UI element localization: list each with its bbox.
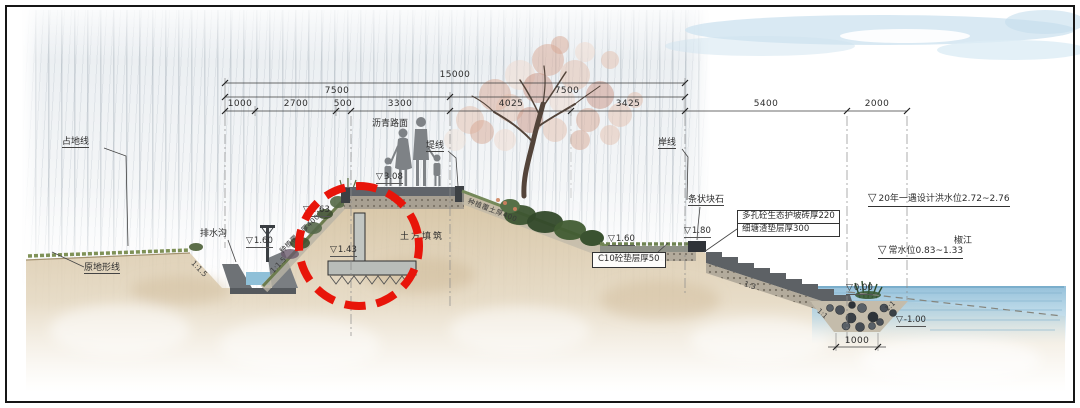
dike-line-label: 堤线 [426,141,444,152]
dim-upper-right: 7500 [555,86,580,96]
original-terrain-line-label: 原地形线 [84,263,120,274]
dim-seg-6: 3425 [616,99,641,109]
dim-seg-2: 2700 [284,99,309,109]
elevation-wall-top: ▽2.63 [303,205,330,217]
elevation-terrace: ▽1.60 [608,234,635,246]
land-take-line-label: 占地线 [62,137,89,148]
dim-seg-1: 1000 [228,99,253,109]
slope-protection-note-box: 多孔砼生态护坡砖厚220 细塘渣垫层厚300 [737,210,840,237]
elevation-icon: ▽ [376,172,383,182]
dim-trench-width: 1000 [845,336,870,346]
dim-seg-8: 2000 [865,99,890,109]
strip-stone-label: 条状块石 [688,195,724,206]
drainage-ditch-label: 排水沟 [200,229,227,239]
asphalt-road [341,186,464,209]
dim-seg-7: 5400 [754,99,779,109]
elevation-trench-bottom: ▽-1.00 [896,315,926,327]
sky [665,10,1080,60]
dim-seg-3: 500 [334,99,352,109]
asphalt-pavement-label: 沥青路面 [372,119,408,129]
elevation-stair-toe: ▽0.00 [846,283,873,295]
flood-level-annotation: ▽20年一遇设计洪水位2.72~2.76 [868,192,1010,207]
shore-line-label: 岸线 [658,138,676,149]
elevation-ditch: ▽1.60 [246,236,273,248]
c10-cushion-note-box: C10砼垫层厚50 [592,252,666,268]
elevation-icon: ▽ [303,205,310,215]
elevation-wall-footing: ▽1.43 [330,245,357,257]
levee-cross-section-drawing: 15000 7500 7500 1000 2700 500 3300 4025 … [0,0,1080,408]
dim-upper-left: 7500 [325,86,350,96]
dim-total: 15000 [440,70,471,80]
slag-cushion-note: 细塘渣垫层厚300 [738,224,839,236]
elevation-icon: ▽ [608,234,615,244]
elevation-road: ▽3.08 [376,172,403,184]
water-level-icon: ▽ [878,243,886,256]
earth-fill-label: 土方填筑 [400,232,444,242]
water-level-icon: ▽ [868,191,876,204]
elevation-icon: ▽ [246,236,253,246]
elevation-icon: ▽ [896,315,903,325]
dim-seg-5: 4025 [499,99,524,109]
porous-brick-note: 多孔砼生态护坡砖厚220 [738,211,839,224]
elevation-stair-top: ▽1.80 [684,226,711,238]
large-tree [444,36,643,196]
elevation-icon: ▽ [846,283,853,293]
dim-seg-4: 3300 [388,99,413,109]
normal-level-annotation: ▽常水位0.83~1.33 [878,244,963,259]
elevation-icon: ▽ [684,226,691,236]
elevation-icon: ▽ [330,245,337,255]
